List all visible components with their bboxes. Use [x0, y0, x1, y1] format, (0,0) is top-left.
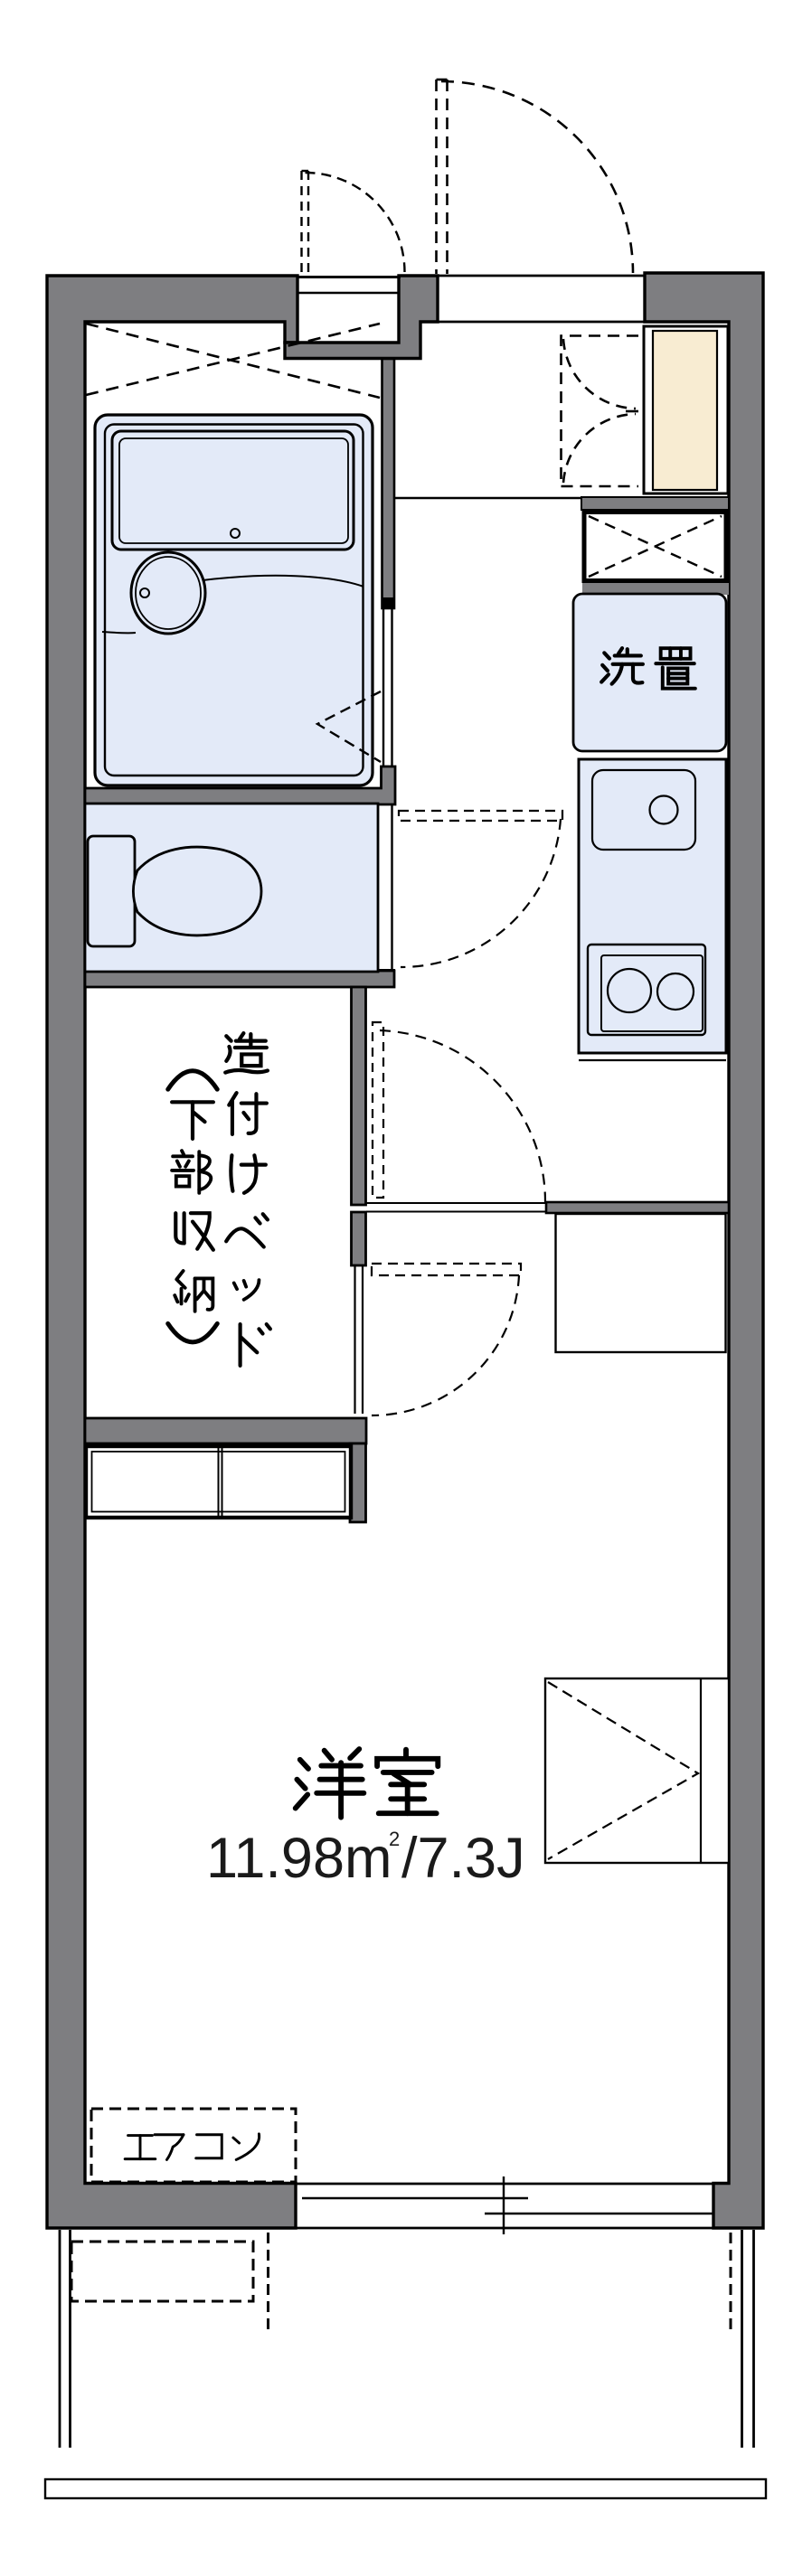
svg-text:11.98m: 11.98m — [206, 1827, 392, 1890]
svg-text:/7.3J: /7.3J — [401, 1827, 525, 1890]
svg-text:2: 2 — [389, 1828, 400, 1850]
